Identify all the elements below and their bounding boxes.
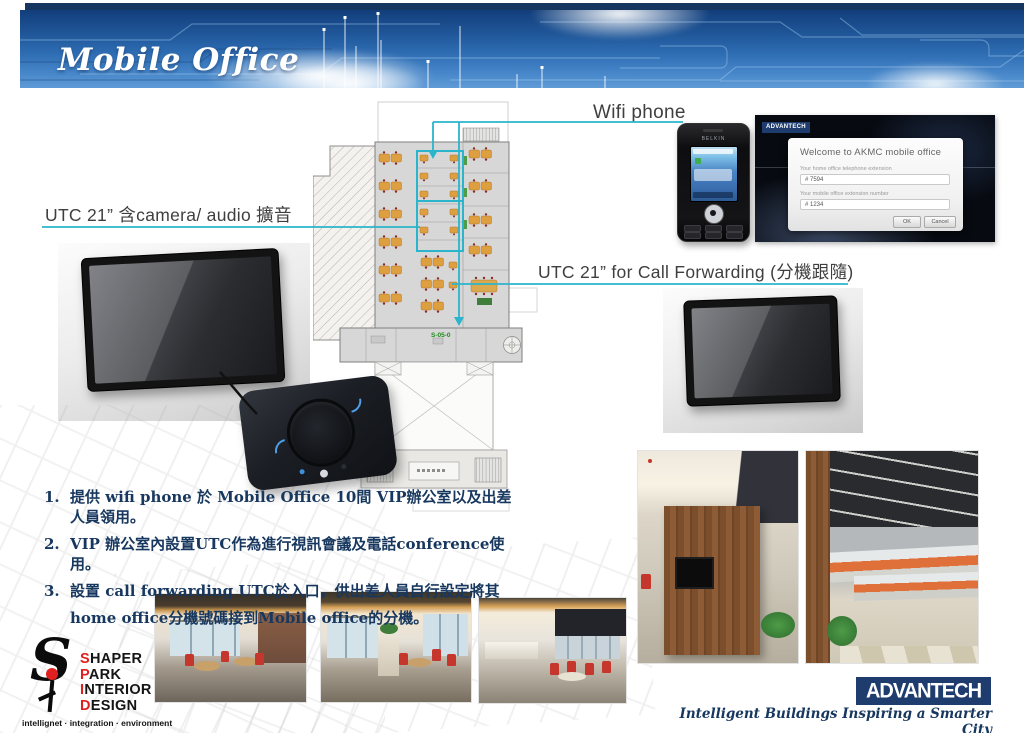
slide-title: Mobile Office (58, 42, 299, 78)
cancel-button[interactable]: Cancel (924, 216, 956, 228)
utc-monitor-screen (81, 248, 286, 392)
utc-call-forwarding-label: UTC 21” for Call Forwarding (分機跟隨) (538, 259, 854, 284)
spid-tagline: intellignet · integration · environment (22, 718, 212, 728)
home-extension-label: Your home office telephone extension (800, 166, 892, 172)
phone-earpiece (703, 129, 723, 132)
planter-column (378, 629, 399, 675)
ok-button[interactable]: OK (893, 216, 921, 228)
phone-brand-label: BELKIN (678, 136, 749, 142)
dark-ceiling (555, 609, 626, 636)
sprinkler (648, 459, 652, 463)
embedded-tv-screen (675, 557, 714, 589)
partition (555, 636, 620, 659)
wifi-phone-device: BELKIN (677, 123, 750, 242)
utc-monitor-screen (683, 295, 841, 406)
mobile-extension-input[interactable]: # 1234 (800, 199, 950, 210)
advantech-tagline: Intelligent Buildings Inspiring a Smarte… (660, 706, 992, 733)
note-item: 3. 設置 call forwarding UTC於入口，供出差人員自行設定將其 (44, 581, 514, 601)
cubicle-partition-row (854, 572, 978, 602)
plant (761, 612, 795, 638)
spid-red-dot (46, 668, 58, 680)
wood-partition-photo (637, 450, 799, 664)
phone-screen (690, 146, 738, 202)
entrance-code-label: S-05-0 (431, 332, 451, 339)
counter (485, 642, 538, 659)
plant (827, 616, 857, 646)
mobile-extension-label: Your mobile office extension number (800, 191, 889, 197)
login-dialog: Welcome to AKMC mobile office Your home … (788, 138, 963, 231)
akmc-login-screenshot: ADVANTECH Welcome to AKMC mobile office … (755, 115, 995, 242)
exposed-ceiling-lights (806, 451, 978, 527)
cubicle-office-photo (805, 450, 979, 664)
utc-monitor-right-photo (663, 288, 863, 433)
login-dialog-title: Welcome to AKMC mobile office (800, 147, 941, 158)
spid-logo: S SHAPER PARK INTERIOR DESIGN intelligne… (22, 640, 202, 730)
advantech-logo: ADVANTECH (856, 677, 991, 705)
note-item-continuation: home office分機號碼接到Mobile office的分機。 (44, 608, 514, 628)
header-banner: Mobile Office (20, 10, 1024, 88)
home-extension-input[interactable]: # 7594 (800, 174, 950, 185)
note-item: 1. 提供 wifi phone 於 Mobile Office 10間 VIP… (44, 487, 514, 527)
advantech-logo-small: ADVANTECH (762, 122, 810, 133)
spid-logo-text: SHAPER PARK INTERIOR DESIGN (80, 652, 152, 714)
header-top-strip (25, 3, 1024, 10)
conference-speakerphone (237, 374, 398, 492)
notes-list: 1. 提供 wifi phone 於 Mobile Office 10間 VIP… (44, 487, 514, 635)
slide: Mobile Office Wifi phone UTC 21” 含camera… (0, 0, 1024, 733)
phone-nav-button[interactable] (704, 204, 724, 224)
wifi-phone-label: Wifi phone (593, 102, 686, 124)
utc-camera-audio-label: UTC 21” 含camera/ audio 擴音 (45, 202, 292, 227)
floor-stripes (840, 646, 978, 663)
note-item: 2. VIP 辦公室內設置UTC作為進行視訊會議及電話conference使用。 (44, 534, 514, 574)
wood-partition-wall (664, 506, 760, 654)
spid-logo-mark: S (22, 638, 78, 716)
